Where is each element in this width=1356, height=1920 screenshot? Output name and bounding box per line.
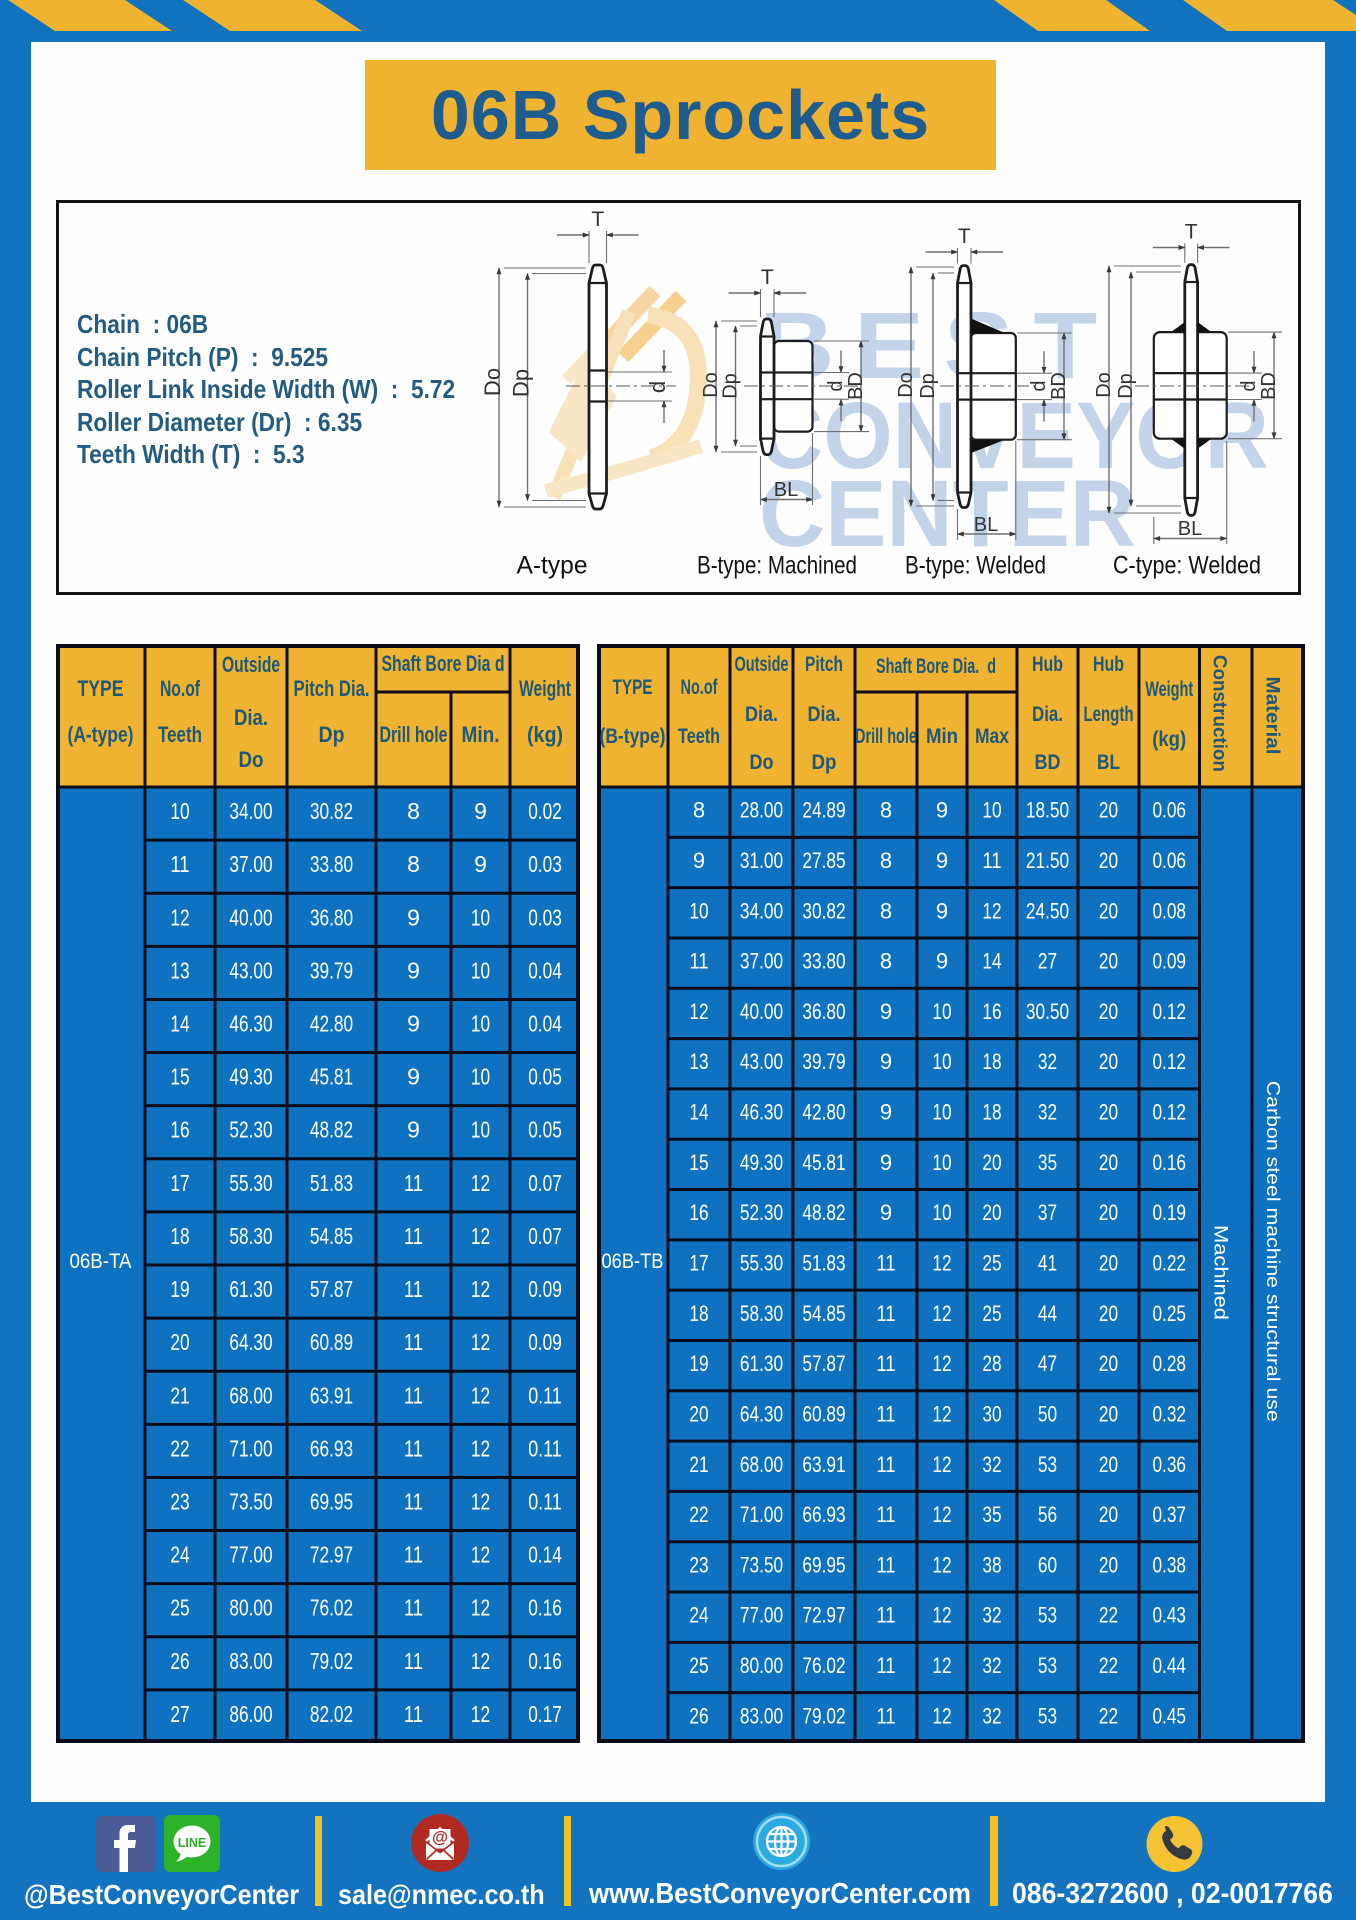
svg-text:8: 8: [693, 798, 705, 823]
svg-text:Weight: Weight: [1145, 678, 1193, 701]
svg-text:9: 9: [880, 1049, 892, 1074]
svg-text:32: 32: [1038, 1049, 1057, 1074]
svg-text:27.85: 27.85: [802, 848, 845, 873]
svg-text:TYPE: TYPE: [613, 676, 653, 699]
svg-text:9: 9: [407, 957, 420, 983]
svg-text:49.30: 49.30: [229, 1064, 272, 1090]
svg-text:(B-type): (B-type): [600, 725, 666, 748]
svg-text:Dp: Dp: [917, 373, 939, 399]
svg-text:66.93: 66.93: [802, 1502, 845, 1527]
svg-text:10: 10: [689, 898, 708, 923]
svg-text:Max: Max: [975, 725, 1009, 748]
svg-text:12: 12: [471, 1648, 490, 1674]
svg-text:No.of: No.of: [160, 676, 200, 701]
svg-text:12: 12: [932, 1251, 951, 1276]
svg-text:10: 10: [932, 999, 951, 1024]
svg-text:LINE: LINE: [178, 1836, 206, 1850]
svg-text:0.16: 0.16: [528, 1595, 562, 1621]
svg-text:17: 17: [170, 1170, 189, 1196]
svg-text:37: 37: [1038, 1200, 1057, 1225]
svg-text:Weight: Weight: [519, 676, 571, 701]
svg-text:28.00: 28.00: [740, 798, 783, 823]
svg-text:06B-TA: 06B-TA: [70, 1250, 132, 1273]
svg-text:50: 50: [1038, 1401, 1057, 1426]
svg-text:T: T: [761, 266, 774, 289]
svg-text:Dp: Dp: [1115, 373, 1137, 399]
svg-text:77.00: 77.00: [229, 1542, 272, 1568]
svg-text:17: 17: [689, 1251, 708, 1276]
svg-text:12: 12: [932, 1452, 951, 1477]
svg-text:18.50: 18.50: [1026, 798, 1069, 823]
svg-text:10: 10: [471, 957, 490, 983]
svg-text:Dia.: Dia.: [1032, 703, 1063, 726]
svg-text:22: 22: [1099, 1703, 1118, 1728]
svg-text:18: 18: [170, 1223, 189, 1249]
svg-text:20: 20: [689, 1401, 708, 1426]
svg-text:9: 9: [407, 1064, 420, 1090]
svg-text:20: 20: [1099, 1351, 1118, 1376]
svg-text:A-type: A-type: [517, 552, 588, 580]
svg-text:30: 30: [982, 1401, 1001, 1426]
svg-text:33.80: 33.80: [802, 949, 845, 974]
svg-text:20: 20: [1099, 1251, 1118, 1276]
svg-text:48.82: 48.82: [802, 1200, 845, 1225]
svg-text:20: 20: [1099, 898, 1118, 923]
svg-text:79.02: 79.02: [802, 1703, 845, 1728]
svg-text:63.91: 63.91: [310, 1382, 353, 1408]
svg-text:Min: Min: [926, 725, 958, 748]
svg-text:Dp: Dp: [509, 369, 534, 397]
svg-text:(A-type): (A-type): [68, 722, 134, 747]
svg-text:Do: Do: [480, 368, 505, 396]
svg-text:25: 25: [170, 1595, 189, 1621]
svg-text:83.00: 83.00: [229, 1648, 272, 1674]
svg-text:43.00: 43.00: [740, 1049, 783, 1074]
svg-text:0.11: 0.11: [528, 1489, 562, 1515]
svg-text:10: 10: [170, 798, 189, 824]
svg-text:Outside: Outside: [735, 653, 789, 676]
svg-text:Shaft Bore Dia. d: Shaft Bore Dia. d: [876, 655, 996, 678]
svg-text:11: 11: [876, 1251, 895, 1276]
svg-text:BD: BD: [1048, 372, 1070, 400]
svg-text:10: 10: [471, 904, 490, 930]
svg-text:12: 12: [932, 1301, 951, 1326]
svg-text:13: 13: [689, 1049, 708, 1074]
svg-text:8: 8: [880, 949, 892, 974]
svg-text:0.03: 0.03: [528, 851, 562, 877]
svg-text:83.00: 83.00: [740, 1703, 783, 1728]
svg-text:31.00: 31.00: [740, 848, 783, 873]
svg-text:Dp: Dp: [812, 751, 837, 774]
svg-text:12: 12: [471, 1223, 490, 1249]
svg-text:11: 11: [876, 1401, 895, 1426]
svg-text:0.17: 0.17: [528, 1701, 562, 1727]
svg-text:9: 9: [880, 999, 892, 1024]
svg-text:54.85: 54.85: [310, 1223, 353, 1249]
svg-text:37.00: 37.00: [740, 949, 783, 974]
svg-text:0.04: 0.04: [528, 957, 562, 983]
svg-text:80.00: 80.00: [740, 1653, 783, 1678]
svg-text:44: 44: [1038, 1301, 1057, 1326]
svg-text:32: 32: [1038, 1100, 1057, 1125]
svg-text:9: 9: [936, 798, 948, 823]
svg-text:@: @: [432, 1829, 448, 1847]
svg-text:20: 20: [1099, 1049, 1118, 1074]
svg-text:21: 21: [689, 1452, 708, 1477]
svg-text:T: T: [1185, 221, 1198, 244]
svg-text:11: 11: [876, 1351, 895, 1376]
svg-text:Do: Do: [895, 372, 917, 398]
svg-text:15: 15: [689, 1150, 708, 1175]
svg-text:BL: BL: [1097, 751, 1120, 774]
svg-text:12: 12: [689, 999, 708, 1024]
svg-text:71.00: 71.00: [229, 1435, 272, 1461]
svg-text:Length: Length: [1084, 703, 1134, 726]
svg-text:Do: Do: [750, 751, 774, 774]
svg-text:32: 32: [982, 1653, 1001, 1678]
svg-text:69.95: 69.95: [310, 1489, 353, 1515]
svg-text:0.03: 0.03: [528, 904, 562, 930]
svg-text:Dia.: Dia.: [808, 703, 841, 726]
svg-text:20: 20: [1099, 1150, 1118, 1175]
svg-text:30.82: 30.82: [310, 798, 353, 824]
svg-text:41: 41: [1038, 1251, 1057, 1276]
svg-text:20: 20: [1099, 949, 1118, 974]
svg-text:21: 21: [170, 1382, 189, 1408]
svg-text:35: 35: [982, 1502, 1001, 1527]
svg-text:47: 47: [1038, 1351, 1057, 1376]
svg-text:0.12: 0.12: [1152, 1100, 1186, 1125]
svg-text:57.87: 57.87: [802, 1351, 845, 1376]
svg-text:34.00: 34.00: [229, 798, 272, 824]
svg-text:14: 14: [689, 1100, 708, 1125]
svg-text:10: 10: [932, 1100, 951, 1125]
svg-text:Drill hole: Drill hole: [855, 725, 917, 748]
svg-text:10: 10: [932, 1200, 951, 1225]
svg-text:9: 9: [936, 898, 948, 923]
svg-text:19: 19: [689, 1351, 708, 1376]
svg-text:38: 38: [982, 1552, 1001, 1577]
svg-text:8: 8: [407, 798, 420, 824]
svg-text:68.00: 68.00: [740, 1452, 783, 1477]
svg-text:BD: BD: [845, 372, 867, 400]
svg-text:39.79: 39.79: [802, 1049, 845, 1074]
svg-text:Construction: Construction: [1209, 655, 1230, 772]
svg-text:11: 11: [404, 1435, 423, 1461]
svg-text:54.85: 54.85: [802, 1301, 845, 1326]
svg-text:27: 27: [1038, 949, 1057, 974]
svg-text:12: 12: [932, 1401, 951, 1426]
svg-text:0.12: 0.12: [1152, 999, 1186, 1024]
svg-text:9: 9: [936, 949, 948, 974]
svg-text:69.95: 69.95: [802, 1552, 845, 1577]
svg-text:12: 12: [982, 898, 1001, 923]
svg-text:20: 20: [170, 1329, 189, 1355]
svg-text:24: 24: [689, 1603, 708, 1628]
svg-text:0.09: 0.09: [528, 1276, 562, 1302]
svg-text:11: 11: [876, 1301, 895, 1326]
svg-text:20: 20: [1099, 1452, 1118, 1477]
svg-text:33.80: 33.80: [310, 851, 353, 877]
svg-text:64.30: 64.30: [229, 1329, 272, 1355]
svg-text:10: 10: [932, 1049, 951, 1074]
svg-text:23: 23: [689, 1552, 708, 1577]
svg-text:d: d: [645, 381, 670, 393]
svg-text:9: 9: [407, 904, 420, 930]
svg-text:25: 25: [982, 1251, 1001, 1276]
svg-text:11: 11: [404, 1648, 423, 1674]
svg-text:12: 12: [932, 1502, 951, 1527]
svg-text:45.81: 45.81: [802, 1150, 845, 1175]
svg-text:27: 27: [170, 1701, 189, 1727]
svg-text:d: d: [825, 380, 847, 391]
svg-text:Carbon steel machine structura: Carbon steel machine structural use: [1263, 1081, 1284, 1422]
svg-text:0.06: 0.06: [1152, 798, 1186, 823]
svg-text:19: 19: [170, 1276, 189, 1302]
svg-text:24.89: 24.89: [802, 798, 845, 823]
svg-text:0.14: 0.14: [528, 1542, 562, 1568]
svg-text:11: 11: [170, 851, 189, 877]
svg-text:55.30: 55.30: [229, 1170, 272, 1196]
svg-text:32: 32: [982, 1452, 1001, 1477]
svg-text:46.30: 46.30: [229, 1011, 272, 1037]
svg-text:45.81: 45.81: [310, 1064, 353, 1090]
svg-text:20: 20: [982, 1200, 1001, 1225]
svg-text:12: 12: [471, 1170, 490, 1196]
svg-text:11: 11: [404, 1489, 423, 1515]
svg-text:16: 16: [982, 999, 1001, 1024]
svg-text:55.30: 55.30: [740, 1251, 783, 1276]
svg-text:12: 12: [932, 1703, 951, 1728]
svg-text:Min.: Min.: [462, 722, 500, 747]
svg-text:11: 11: [404, 1276, 423, 1302]
svg-text:Hub: Hub: [1032, 653, 1063, 676]
svg-text:Do: Do: [1093, 372, 1115, 398]
svg-text:11: 11: [404, 1170, 423, 1196]
svg-text:B-type: Welded: B-type: Welded: [905, 552, 1046, 580]
svg-text:Dp: Dp: [319, 722, 345, 747]
svg-text:0.25: 0.25: [1152, 1301, 1186, 1326]
svg-text:68.00: 68.00: [229, 1382, 272, 1408]
svg-text:72.97: 72.97: [802, 1603, 845, 1628]
svg-text:11: 11: [876, 1703, 895, 1728]
svg-text:12: 12: [471, 1701, 490, 1727]
svg-text:8: 8: [880, 848, 892, 873]
svg-text:8: 8: [880, 798, 892, 823]
svg-text:52.30: 52.30: [229, 1117, 272, 1143]
svg-text:d: d: [1238, 380, 1260, 391]
svg-text:20: 20: [1099, 999, 1118, 1024]
svg-text:10: 10: [932, 1150, 951, 1175]
svg-text:12: 12: [932, 1552, 951, 1577]
svg-text:48.82: 48.82: [310, 1117, 353, 1143]
svg-text:9: 9: [936, 848, 948, 873]
svg-text:Teeth: Teeth: [678, 725, 720, 748]
svg-text:22: 22: [689, 1502, 708, 1527]
svg-text:42.80: 42.80: [802, 1100, 845, 1125]
svg-text:Dia.: Dia.: [745, 703, 778, 726]
svg-text:9: 9: [880, 1100, 892, 1125]
svg-text:0.16: 0.16: [1152, 1150, 1186, 1175]
svg-text:10: 10: [471, 1117, 490, 1143]
svg-text:32: 32: [982, 1603, 1001, 1628]
svg-text:53: 53: [1038, 1603, 1057, 1628]
svg-text:Dia.: Dia.: [234, 705, 268, 730]
svg-text:20: 20: [1099, 1552, 1118, 1577]
svg-text:52.30: 52.30: [740, 1200, 783, 1225]
svg-text:20: 20: [982, 1150, 1001, 1175]
svg-text:22: 22: [1099, 1603, 1118, 1628]
svg-text:14: 14: [170, 1011, 189, 1037]
svg-text:20: 20: [1099, 1100, 1118, 1125]
svg-text:24: 24: [170, 1542, 189, 1568]
svg-text:39.79: 39.79: [310, 957, 353, 983]
svg-text:49.30: 49.30: [740, 1150, 783, 1175]
svg-text:60.89: 60.89: [802, 1401, 845, 1426]
svg-text:34.00: 34.00: [740, 898, 783, 923]
svg-text:20: 20: [1099, 1502, 1118, 1527]
svg-text:13: 13: [170, 957, 189, 983]
svg-text:10: 10: [471, 1064, 490, 1090]
svg-text:37.00: 37.00: [229, 851, 272, 877]
svg-text:Outside: Outside: [222, 652, 280, 677]
svg-text:12: 12: [471, 1542, 490, 1568]
svg-text:0.38: 0.38: [1152, 1552, 1186, 1577]
svg-text:Hub: Hub: [1093, 653, 1124, 676]
svg-text:BL: BL: [1178, 518, 1202, 540]
svg-text:20: 20: [1099, 798, 1118, 823]
svg-text:73.50: 73.50: [229, 1489, 272, 1515]
svg-text:11: 11: [876, 1502, 895, 1527]
svg-text:18: 18: [689, 1301, 708, 1326]
svg-text:(kg): (kg): [527, 722, 563, 747]
svg-text:9: 9: [474, 851, 487, 877]
svg-text:0.04: 0.04: [528, 1011, 562, 1037]
svg-text:0.45: 0.45: [1152, 1703, 1186, 1728]
svg-text:22: 22: [170, 1435, 189, 1461]
svg-text:11: 11: [404, 1595, 423, 1621]
svg-text:12: 12: [471, 1435, 490, 1461]
svg-text:8: 8: [407, 851, 420, 877]
svg-text:Drill hole: Drill hole: [380, 722, 448, 747]
svg-text:58.30: 58.30: [229, 1223, 272, 1249]
svg-text:26: 26: [689, 1703, 708, 1728]
svg-text:30.50: 30.50: [1026, 999, 1069, 1024]
svg-text:46.30: 46.30: [740, 1100, 783, 1125]
svg-text:12: 12: [170, 904, 189, 930]
svg-text:22: 22: [1099, 1653, 1118, 1678]
svg-text:B-type: Machined: B-type: Machined: [697, 552, 857, 580]
svg-text:06B-TB: 06B-TB: [602, 1250, 664, 1273]
svg-text:0.02: 0.02: [528, 798, 562, 824]
svg-text:11: 11: [689, 949, 708, 974]
svg-text:57.87: 57.87: [310, 1276, 353, 1302]
svg-text:0.05: 0.05: [528, 1064, 562, 1090]
svg-text:0.11: 0.11: [528, 1382, 562, 1408]
svg-text:0.16: 0.16: [528, 1648, 562, 1674]
svg-text:0.28: 0.28: [1152, 1351, 1186, 1376]
svg-text:76.02: 76.02: [802, 1653, 845, 1678]
svg-text:20: 20: [1099, 1401, 1118, 1426]
svg-text:0.22: 0.22: [1152, 1251, 1186, 1276]
svg-text:23: 23: [170, 1489, 189, 1515]
svg-text:53: 53: [1038, 1653, 1057, 1678]
svg-text:0.36: 0.36: [1152, 1452, 1186, 1477]
svg-text:12: 12: [932, 1603, 951, 1628]
svg-text:60: 60: [1038, 1552, 1057, 1577]
svg-text:0.32: 0.32: [1152, 1401, 1186, 1426]
svg-text:Shaft Bore Dia d: Shaft Bore Dia d: [382, 651, 505, 676]
svg-text:0.12: 0.12: [1152, 1049, 1186, 1074]
svg-text:20: 20: [1099, 848, 1118, 873]
svg-text:80.00: 80.00: [229, 1595, 272, 1621]
svg-text:77.00: 77.00: [740, 1603, 783, 1628]
svg-text:12: 12: [932, 1351, 951, 1376]
svg-text:BD: BD: [1035, 751, 1061, 774]
svg-text:79.02: 79.02: [310, 1648, 353, 1674]
svg-text:86.00: 86.00: [229, 1701, 272, 1727]
svg-text:Machined: Machined: [1210, 1225, 1231, 1320]
svg-text:20: 20: [1099, 1200, 1118, 1225]
svg-text:14: 14: [982, 949, 1001, 974]
svg-text:0.19: 0.19: [1152, 1200, 1186, 1225]
svg-text:11: 11: [404, 1701, 423, 1727]
svg-text:8: 8: [880, 898, 892, 923]
svg-text:18: 18: [982, 1049, 1001, 1074]
svg-text:BL: BL: [974, 514, 998, 536]
svg-text:11: 11: [982, 848, 1001, 873]
svg-text:0.43: 0.43: [1152, 1603, 1186, 1628]
svg-text:16: 16: [689, 1200, 708, 1225]
svg-text:30.82: 30.82: [802, 898, 845, 923]
svg-text:Teeth: Teeth: [158, 722, 202, 747]
svg-text:20: 20: [1099, 1301, 1118, 1326]
svg-text:12: 12: [471, 1329, 490, 1355]
svg-text:12: 12: [471, 1595, 490, 1621]
svg-text:60.89: 60.89: [310, 1329, 353, 1355]
svg-text:9: 9: [407, 1117, 420, 1143]
svg-text:TYPE: TYPE: [78, 676, 124, 701]
svg-text:40.00: 40.00: [229, 904, 272, 930]
svg-text:51.83: 51.83: [802, 1251, 845, 1276]
svg-text:Pitch Dia.: Pitch Dia.: [294, 676, 370, 701]
svg-text:82.02: 82.02: [310, 1701, 353, 1727]
svg-text:C-type: Welded: C-type: Welded: [1113, 552, 1261, 580]
svg-text:72.97: 72.97: [310, 1542, 353, 1568]
svg-text:9: 9: [880, 1150, 892, 1175]
svg-text:11: 11: [404, 1329, 423, 1355]
svg-text:0.37: 0.37: [1152, 1502, 1186, 1527]
svg-text:25: 25: [982, 1301, 1001, 1326]
svg-text:35: 35: [1038, 1150, 1057, 1175]
svg-text:76.02: 76.02: [310, 1595, 353, 1621]
svg-text:0.11: 0.11: [528, 1435, 562, 1461]
svg-text:12: 12: [471, 1489, 490, 1515]
svg-text:73.50: 73.50: [740, 1552, 783, 1577]
svg-text:T: T: [958, 225, 971, 248]
svg-text:12: 12: [471, 1382, 490, 1408]
svg-text:21.50: 21.50: [1026, 848, 1069, 873]
svg-text:64.30: 64.30: [740, 1401, 783, 1426]
svg-text:Dp: Dp: [720, 373, 742, 399]
svg-text:16: 16: [170, 1117, 189, 1143]
svg-text:28: 28: [982, 1351, 1001, 1376]
svg-text:42.80: 42.80: [310, 1011, 353, 1037]
svg-text:11: 11: [876, 1653, 895, 1678]
svg-text:11: 11: [404, 1223, 423, 1249]
svg-text:0.08: 0.08: [1152, 898, 1186, 923]
svg-text:9: 9: [693, 848, 705, 873]
